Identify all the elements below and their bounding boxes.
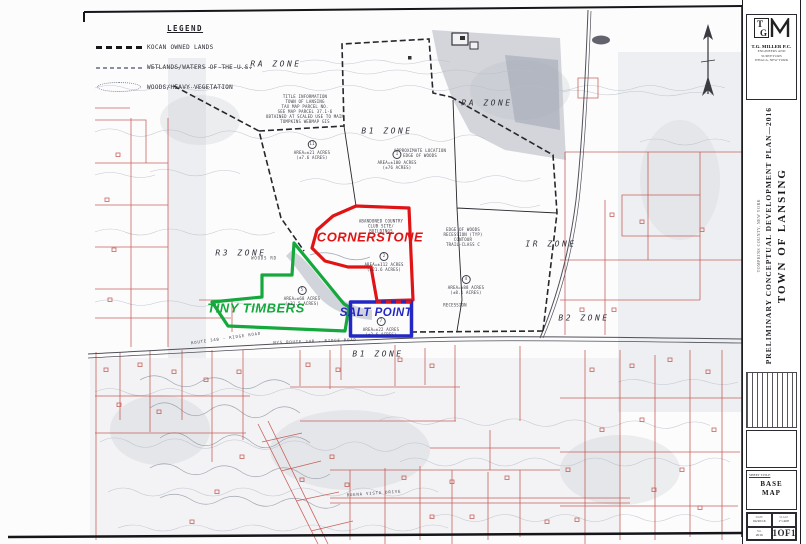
- zone-label: B2 ZONE: [558, 314, 609, 323]
- zone-label: RA ZONE: [461, 99, 512, 108]
- tg-miller-logo-icon: T G: [754, 18, 790, 38]
- revision-block: [746, 372, 797, 428]
- project-title-area: TOMPKINS COUNTY, NEW YORK PRELIMINARY CO…: [743, 102, 800, 370]
- sheet-title-box: SHEET TITLE BASE MAP: [746, 470, 797, 510]
- notes-box: [746, 430, 797, 468]
- parcel-id-circle: 2: [380, 252, 389, 261]
- project-title: TOWN OF LANSING: [776, 168, 788, 303]
- zone-label: B1 ZONE: [352, 350, 403, 359]
- parcel-id-circle: 7: [376, 317, 385, 326]
- sheet-title-line1: BASE: [749, 480, 794, 489]
- sheet-title-label: SHEET TITLE: [749, 473, 794, 477]
- parcel-annotation: 4 AREA=±88 ACRES (±8.1 ACRES): [448, 275, 485, 295]
- svg-text:G: G: [760, 28, 767, 38]
- sheet-number-value: 1OF1: [773, 528, 796, 538]
- parcel-annotation: 2 AREA=±112 ACRES (±21.6 ACRES): [364, 252, 403, 272]
- parcel-id-circle: 5: [297, 286, 306, 295]
- zone-label: B1 ZONE: [361, 127, 412, 136]
- plan-sheet: LEGEND KOCAN OWNED LANDS WETLANDS/WATERS…: [0, 0, 806, 544]
- road-label: NYS ROUTE 34B - RIDGE ROAD: [273, 337, 357, 345]
- scale-value: 1"=400': [773, 519, 796, 523]
- parcel-id-circle: 4: [461, 275, 470, 284]
- parcel-annotation: APPROXIMATE LOCATION EDGE OF WOODS: [394, 148, 446, 158]
- map-labels: RA ZONEB1 ZONERA ZONER3 ZONEIR ZONEB2 ZO…: [0, 0, 806, 544]
- parcel-annotation: RECESSION: [443, 303, 466, 308]
- zone-label: IR ZONE: [525, 240, 576, 249]
- sheet-title-line2: MAP: [749, 489, 794, 498]
- road-label: WOODS RD: [251, 256, 277, 261]
- firm-subtitle-2: ITHACA, NEW YORK: [747, 58, 796, 63]
- road-label: ROUTE 34B - RIDGE ROAD: [191, 331, 262, 346]
- project-subtitle: PRELIMINARY CONCEPTUAL DEVELOPMENT PLAN—…: [764, 107, 773, 364]
- parcel-id-circle: 11: [307, 140, 316, 149]
- title-block: T G T.G. MILLER P.C. ENGINEERS AND SURVE…: [742, 0, 801, 544]
- project-note: TOMPKINS COUNTY, NEW YORK: [756, 199, 761, 272]
- date-value: 04/20/16: [748, 519, 771, 523]
- sheet-number-cell: 1OF1: [772, 527, 797, 541]
- zone-label: RA ZONE: [250, 60, 301, 69]
- parcel-annotation: EDGE OF WOODS RECESSION (TYP) CONTOUR TR…: [443, 227, 482, 247]
- parcel-annotation: 11 AREA=±21 ACRES (±7.6 ACRES): [294, 140, 331, 160]
- firm-logo-box: T G T.G. MILLER P.C. ENGINEERS AND SURVE…: [746, 14, 797, 100]
- firm-subtitle-1: ENGINEERS AND SURVEYORS: [747, 49, 796, 58]
- parcel-annotation: TITLE INFORMATION TOWN OF LANSING TAX MA…: [266, 94, 344, 124]
- parcel-annotation: ABANDONED COUNTRY CLUB SITE/ BUILDINGS: [359, 219, 403, 234]
- parcel-annotation: 5 AREA=±68 ACRES (±31.5 ACRES): [284, 286, 321, 306]
- scale-cell: SCALE 1"=400': [772, 513, 797, 527]
- road-label: BUENA VISTA DRIVE: [347, 489, 402, 498]
- number-value: 2016: [748, 533, 771, 537]
- parcel-annotation: 7 AREA=±22 ACRES (±2.6 ACRES): [363, 317, 400, 337]
- date-cell: DATE 04/20/16: [747, 513, 772, 527]
- title-block-fields: DATE 04/20/16 SCALE 1"=400' NO. 2016 1OF…: [746, 512, 797, 541]
- number-cell: NO. 2016: [747, 527, 772, 541]
